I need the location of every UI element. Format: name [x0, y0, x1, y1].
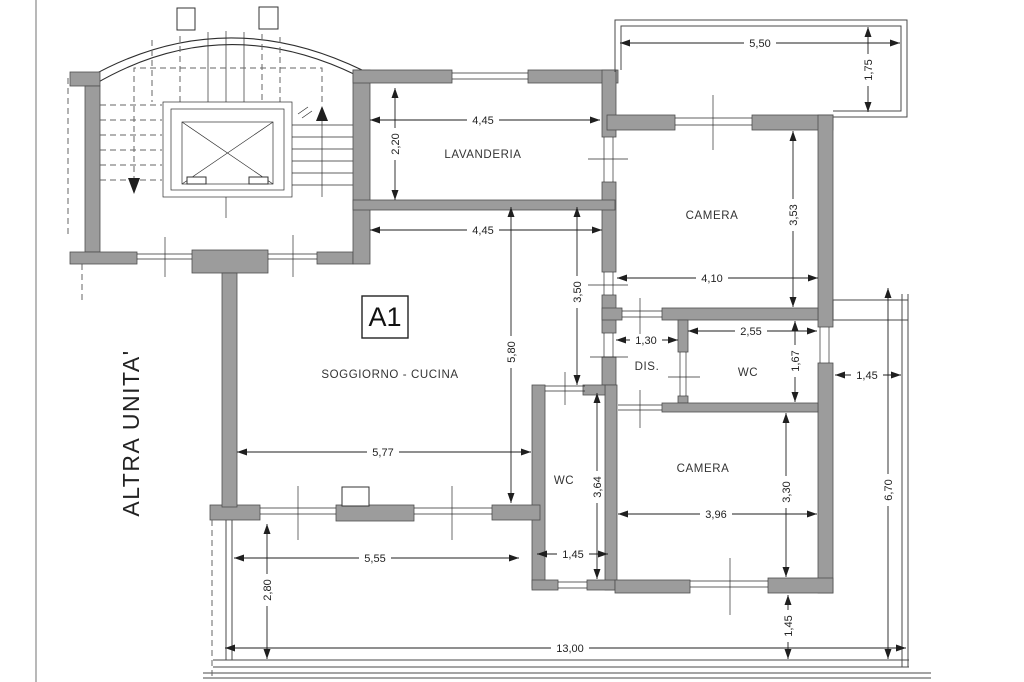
dim-label: 5,77 — [372, 447, 393, 459]
room-label-wc-top: WC — [738, 367, 758, 379]
dim-label: 3,30 — [781, 481, 793, 502]
dim-wc-bottom-depth: 3,64 — [591, 393, 604, 579]
dim-wc-top-depth: 1,67 — [789, 321, 802, 402]
dim-bedroom-bottom-offset: 1,45 — [782, 595, 795, 659]
floor-plan-page: 5,50 4,45 4,45 4,10 2,55 1,30 — [0, 0, 1024, 682]
dim-label: 13,00 — [556, 643, 584, 655]
unit-badge-label: A1 — [368, 302, 401, 332]
dim-label: 3,53 — [788, 204, 800, 225]
dim-wc-top-width: 2,55 — [688, 325, 817, 338]
dim-balcony-inner-width: 5,55 — [234, 552, 519, 565]
dim-label: 4,45 — [472, 115, 493, 127]
dim-label: 4,45 — [472, 225, 493, 237]
dim-label: 1,45 — [562, 549, 583, 561]
dim-label: 4,10 — [701, 273, 722, 285]
elevator-icon — [163, 102, 292, 218]
dim-balcony-right-width: 1,45 — [835, 369, 901, 382]
dim-label: 3,96 — [705, 509, 726, 521]
dim-balcony-bottom-depth: 2,80 — [261, 524, 274, 659]
stair-down-arrow-icon — [128, 178, 140, 194]
dim-label: 5,55 — [364, 553, 385, 565]
dim-bedroom-top-depth: 3,53 — [787, 131, 800, 307]
dim-living-width: 5,77 — [237, 446, 531, 459]
room-label-wc-bottom: WC — [554, 475, 574, 487]
dim-total-width: 13,00 — [225, 642, 906, 655]
kitchen-fixture — [342, 487, 369, 506]
dim-terrace-width: 5,50 — [620, 37, 900, 50]
unit-badge: A1 — [362, 296, 408, 338]
room-label-hallway: DIS. — [635, 361, 660, 373]
dim-label: 1,75 — [863, 59, 875, 80]
dim-bedroom-top-width: 4,10 — [617, 272, 818, 285]
dim-laundry-width: 4,45 — [370, 114, 600, 127]
dim-laundry-depth: 2,20 — [389, 88, 402, 200]
dim-label: 1,67 — [790, 350, 802, 371]
dim-label: 1,30 — [635, 335, 656, 347]
dim-label: 3,64 — [592, 476, 604, 497]
dim-bedroom-bottom-width: 3,96 — [618, 508, 817, 521]
dim-label: 1,45 — [783, 615, 795, 636]
dim-living-height: 5,80 — [505, 207, 518, 503]
dim-label: 5,50 — [749, 38, 770, 50]
dim-label: 2,80 — [262, 579, 274, 600]
adjacent-unit-label: ALTRA UNITA' — [118, 349, 144, 516]
arch-pillar — [259, 7, 278, 29]
room-label-living: SOGGIORNO - CUCINA — [321, 369, 458, 381]
room-label-laundry: LAVANDERIA — [444, 149, 521, 161]
dim-label: 2,55 — [740, 326, 761, 338]
dim-label: 6,70 — [883, 479, 895, 500]
dim-bedroom-bottom-depth: 3,30 — [780, 413, 793, 577]
dim-balcony-right-height: 6,70 — [882, 288, 895, 659]
stair-up-arrow-icon — [316, 106, 328, 121]
dim-terrace-depth: 1,75 — [862, 27, 875, 112]
floor-plan-drawing: 5,50 4,45 4,45 4,10 2,55 1,30 — [0, 0, 1024, 682]
room-label-bedroom-top: CAMERA — [686, 210, 739, 222]
dim-label: 2,20 — [390, 133, 402, 154]
dim-label: 3,50 — [572, 281, 584, 302]
dim-living-top-width: 4,45 — [370, 224, 602, 237]
arch-pillar — [177, 8, 195, 30]
dim-hallway-width: 1,30 — [616, 334, 678, 347]
dim-hall-height: 3,50 — [571, 207, 584, 385]
room-label-bedroom-bottom: CAMERA — [677, 463, 730, 475]
dim-label: 5,80 — [506, 341, 518, 362]
dim-label: 1,45 — [856, 370, 877, 382]
